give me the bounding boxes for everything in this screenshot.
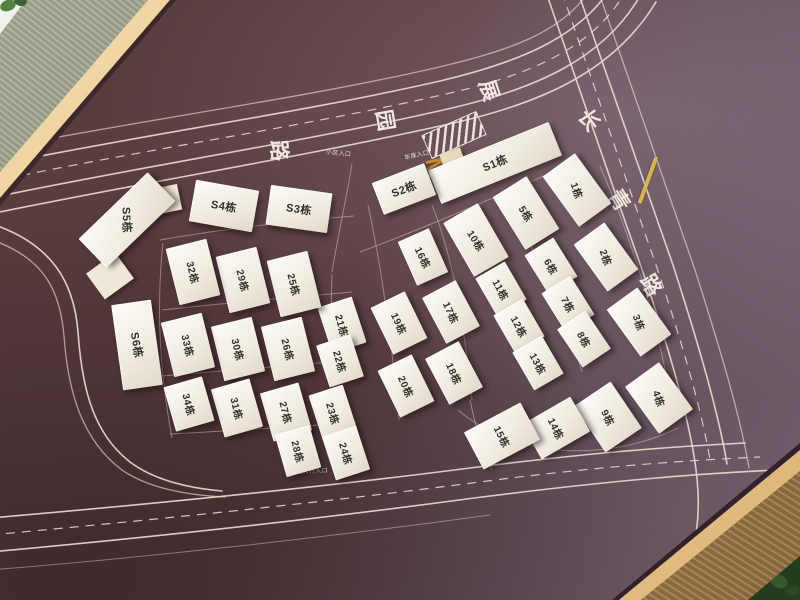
building-label: 25栋 [284, 271, 304, 297]
building-label: 3栋 [629, 312, 649, 333]
building-label: 1栋 [567, 180, 587, 201]
building-label: 26栋 [278, 336, 298, 362]
building-label: 16栋 [411, 244, 434, 271]
building-label: 11栋 [489, 276, 513, 303]
building-label: 28栋 [288, 438, 308, 464]
building-label: 8栋 [573, 328, 594, 350]
building-label: 14栋 [544, 415, 567, 442]
building-label: 23栋 [323, 400, 344, 426]
building-label: 24栋 [336, 440, 357, 466]
building-label: S1栋 [480, 151, 510, 176]
building-label: 12栋 [507, 312, 531, 339]
building-label: 13栋 [526, 349, 550, 376]
building-label: 20栋 [395, 373, 418, 400]
building-label: 34栋 [179, 391, 199, 417]
building-label: 10栋 [464, 226, 489, 253]
building-label: 22栋 [330, 348, 351, 374]
building-label: 5栋 [515, 202, 536, 224]
building-label: 18栋 [443, 360, 466, 387]
building-label: 32栋 [183, 259, 203, 285]
building-label: 29栋 [233, 267, 253, 293]
building-label: S4栋 [210, 196, 238, 216]
building-label: S2栋 [389, 177, 419, 201]
building-S3: S3栋 [266, 185, 333, 233]
building-label: 27栋 [276, 399, 296, 425]
building-label: 9栋 [598, 406, 619, 427]
building-label: S5栋 [119, 207, 136, 234]
building-label: S3栋 [285, 199, 313, 218]
site-plan-board-photo: 展 园 路 长 青 路 M 小区入口 车库入口 小区人行入口 S1栋 S2栋 S… [0, 0, 800, 600]
building-label: 4栋 [649, 388, 669, 409]
road-label-char: 路 [267, 139, 289, 161]
building-label: 15栋 [490, 423, 513, 450]
building-label: 17栋 [440, 299, 463, 326]
building-label: 2栋 [596, 247, 616, 268]
building-label: 19栋 [388, 310, 411, 337]
road-label-char: 园 [372, 108, 396, 132]
building-label: 33栋 [178, 332, 198, 358]
building-label: 7栋 [557, 293, 578, 315]
building-label: 6栋 [540, 255, 561, 277]
building-label: S6栋 [127, 331, 147, 359]
building-label: 30栋 [228, 336, 248, 362]
building-label: 31栋 [227, 395, 247, 421]
